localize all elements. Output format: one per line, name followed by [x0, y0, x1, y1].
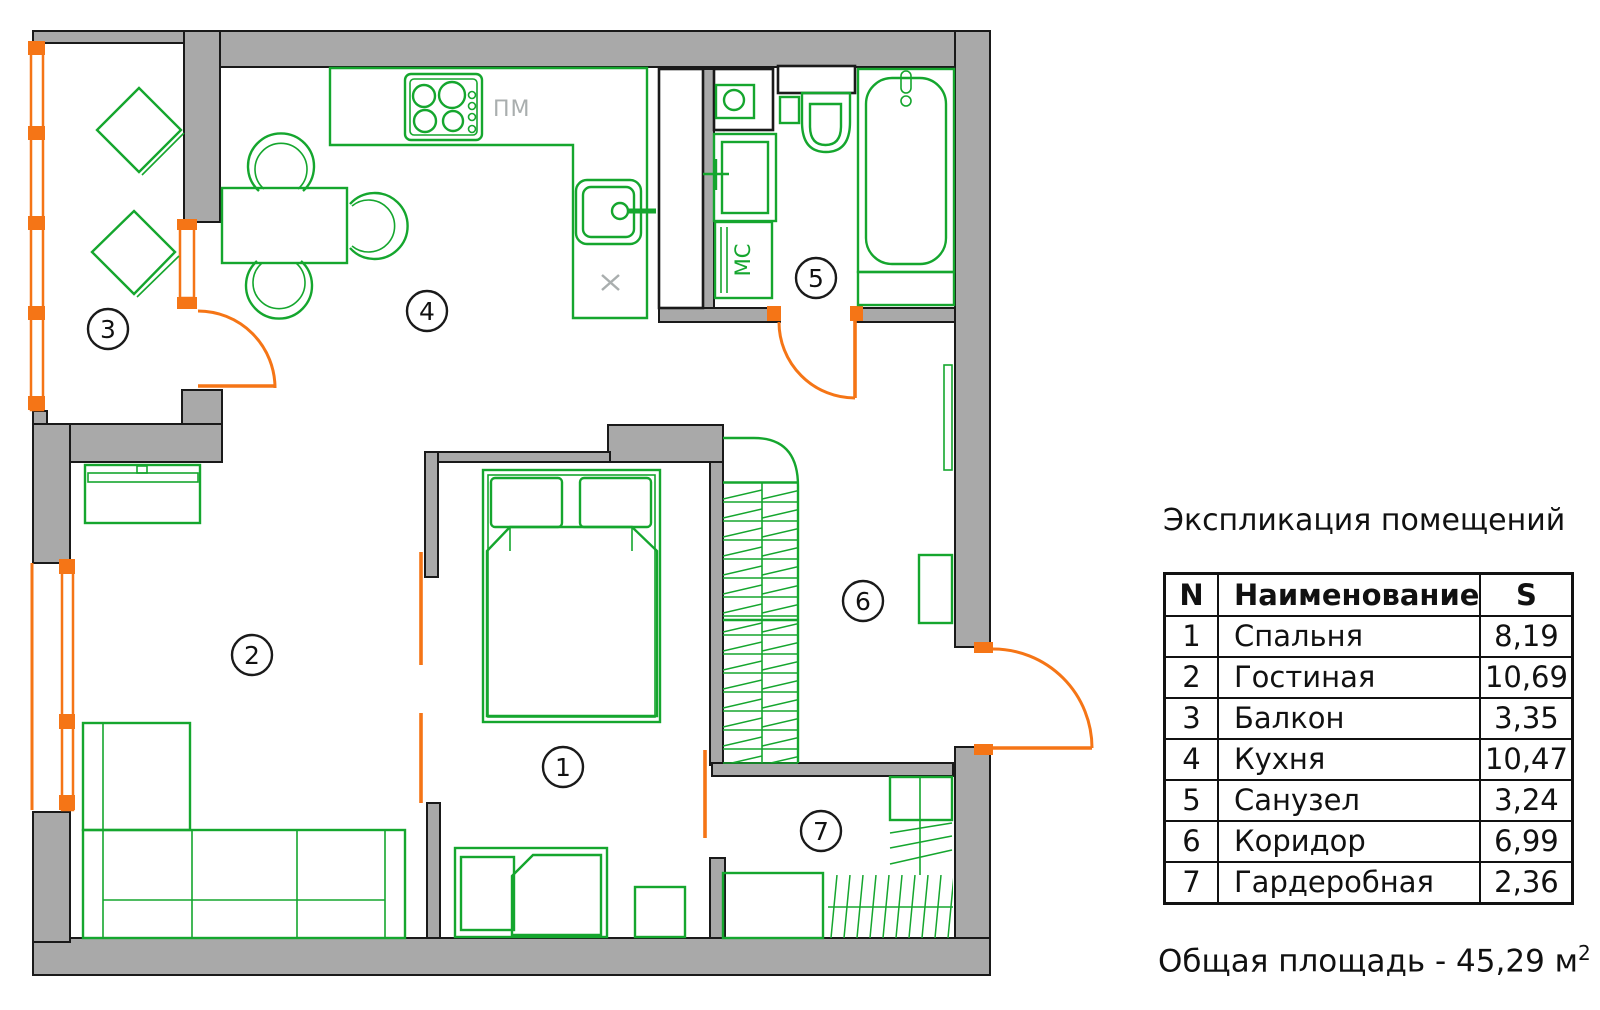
corner-sofa — [83, 723, 405, 938]
room-legend-table: N Наименование S 1 Спальня 8,19 2 Гостин… — [1163, 572, 1574, 905]
header-area: S — [1480, 574, 1573, 617]
entrance-door — [974, 642, 1092, 755]
room-badge-5: 5 — [796, 258, 836, 298]
hob-cross-marker — [602, 275, 619, 290]
bathroom-sink — [703, 134, 776, 221]
bathroom-door — [767, 306, 863, 398]
total-area-text: Общая площадь - 45,29 м2 — [1158, 941, 1591, 979]
table-row: 7 Гардеробная 2,36 — [1165, 862, 1573, 904]
bathtub — [858, 69, 954, 305]
corridor-wardrobe — [723, 438, 798, 763]
dining-table — [222, 188, 347, 263]
washing-machine-label: МС — [731, 244, 755, 277]
double-bed — [483, 470, 660, 722]
wardrobe-room-shelving — [723, 777, 953, 938]
kitchen-sink — [576, 180, 656, 244]
floor-plan: ПМ МС — [0, 0, 1100, 1010]
room-badge-2: 2 — [232, 635, 272, 675]
total-area-sup: 2 — [1578, 941, 1591, 965]
table-row: 4 Кухня 10,47 — [1165, 739, 1573, 780]
wall-mirror — [944, 365, 952, 470]
stove — [405, 74, 482, 140]
balcony-door — [177, 219, 275, 388]
table-row: 3 Балкон 3,35 — [1165, 698, 1573, 739]
table-row: 5 Санузел 3,24 — [1165, 780, 1573, 821]
room-badge-6: 6 — [843, 581, 883, 621]
tv-unit — [85, 465, 200, 523]
ventilation-shaft — [659, 69, 703, 308]
wall-niche — [778, 66, 855, 93]
table-row: 1 Спальня 8,19 — [1165, 616, 1573, 657]
svg-text:7: 7 — [813, 817, 829, 846]
svg-text:3: 3 — [100, 315, 116, 344]
shoe-cabinet — [919, 555, 952, 623]
balcony-window — [28, 41, 45, 410]
room-badge-1: 1 — [543, 747, 583, 787]
living-room-window — [32, 559, 75, 810]
svg-text:1: 1 — [555, 753, 571, 782]
bedside-stool — [635, 887, 685, 937]
svg-text:5: 5 — [808, 264, 824, 293]
room-badge-3: 3 — [88, 309, 128, 349]
svg-text:2: 2 — [244, 641, 260, 670]
total-area-label: Общая площадь - 45,29 м — [1158, 943, 1578, 979]
washing-machine: МС — [715, 222, 772, 298]
room-badge-4: 4 — [407, 291, 447, 331]
dining-chairs — [246, 133, 408, 318]
walls — [33, 31, 990, 975]
svg-text:6: 6 — [855, 587, 871, 616]
child-bed — [455, 848, 607, 937]
header-name: Наименование — [1218, 574, 1480, 617]
header-num: N — [1165, 574, 1219, 617]
table-header-row: N Наименование S — [1165, 574, 1573, 617]
dishwasher-label: ПМ — [493, 97, 531, 122]
svg-text:4: 4 — [419, 297, 435, 326]
legend-title: Экспликация помещений — [1163, 503, 1565, 538]
room-badge-7: 7 — [801, 811, 841, 851]
table-row: 2 Гостиная 10,69 — [1165, 657, 1573, 698]
balcony-chairs — [92, 88, 184, 297]
toilet — [780, 93, 850, 152]
table-row: 6 Коридор 6,99 — [1165, 821, 1573, 862]
